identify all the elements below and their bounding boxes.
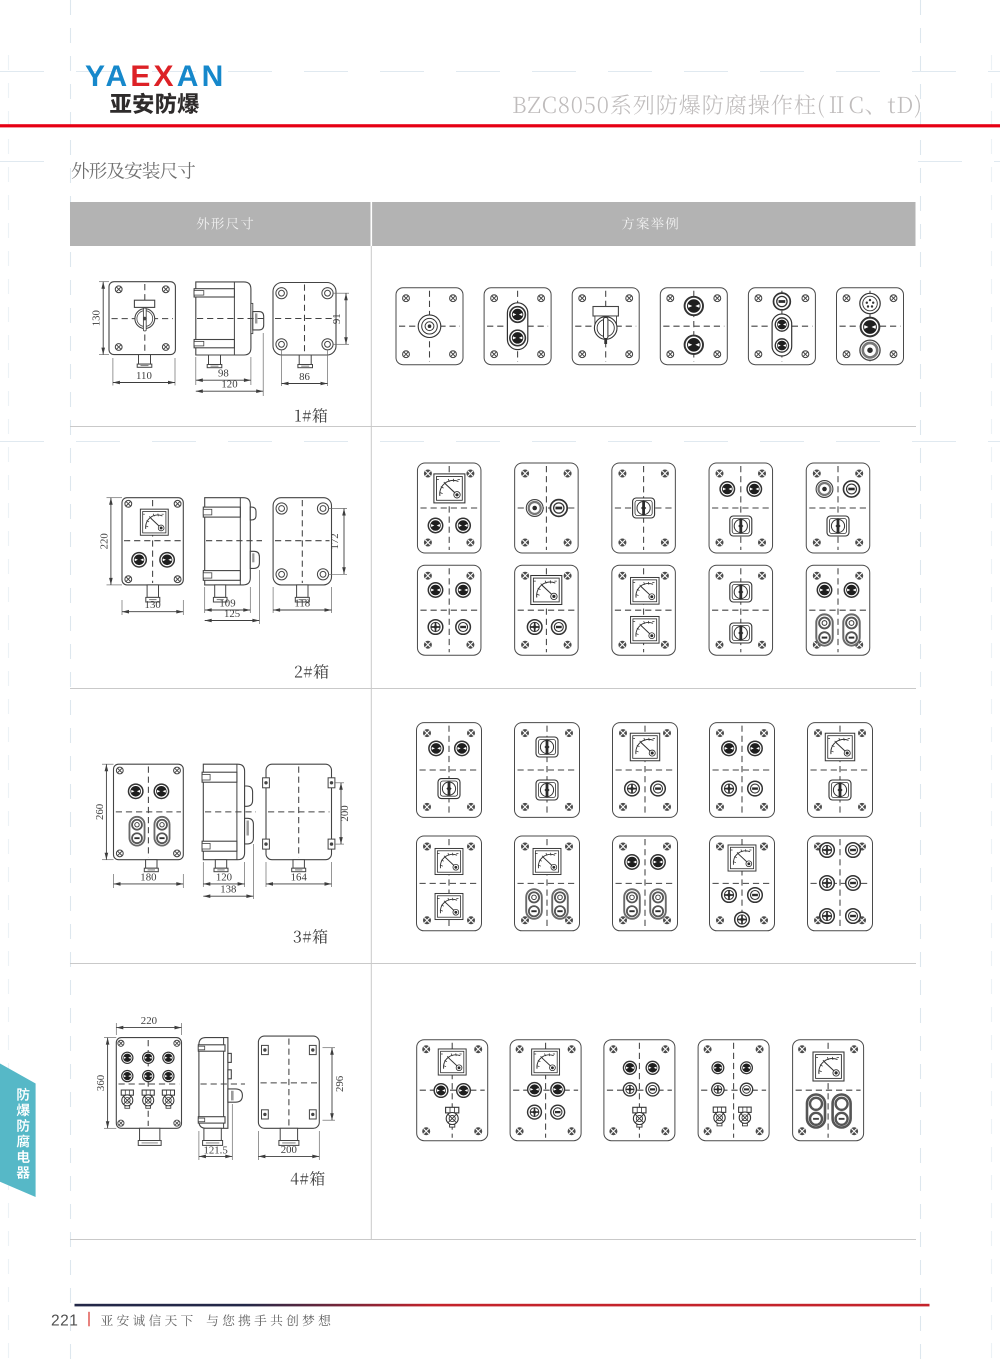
svg-text:138: 138: [220, 884, 236, 896]
svg-text:130: 130: [91, 310, 103, 326]
svg-text:220: 220: [98, 533, 110, 549]
svg-text:164: 164: [291, 871, 308, 883]
svg-text:221: 221: [51, 1313, 78, 1330]
svg-text:110: 110: [136, 370, 152, 382]
svg-text:91: 91: [331, 313, 343, 324]
svg-text:172: 172: [329, 533, 341, 549]
svg-text:296: 296: [334, 1075, 346, 1092]
svg-text:130: 130: [145, 599, 161, 611]
svg-text:200: 200: [339, 805, 351, 821]
svg-text:200: 200: [281, 1144, 297, 1156]
svg-text:360: 360: [95, 1075, 107, 1091]
svg-text:220: 220: [141, 1015, 157, 1027]
svg-text:120: 120: [216, 871, 232, 883]
svg-text:86: 86: [299, 371, 310, 383]
svg-text:180: 180: [140, 871, 156, 883]
svg-text:YAEXAN: YAEXAN: [85, 60, 226, 93]
svg-text:121.5: 121.5: [203, 1145, 227, 1157]
svg-text:120: 120: [221, 379, 237, 391]
svg-text:125: 125: [224, 608, 240, 620]
svg-text:118: 118: [294, 598, 310, 610]
svg-text:260: 260: [94, 804, 106, 820]
